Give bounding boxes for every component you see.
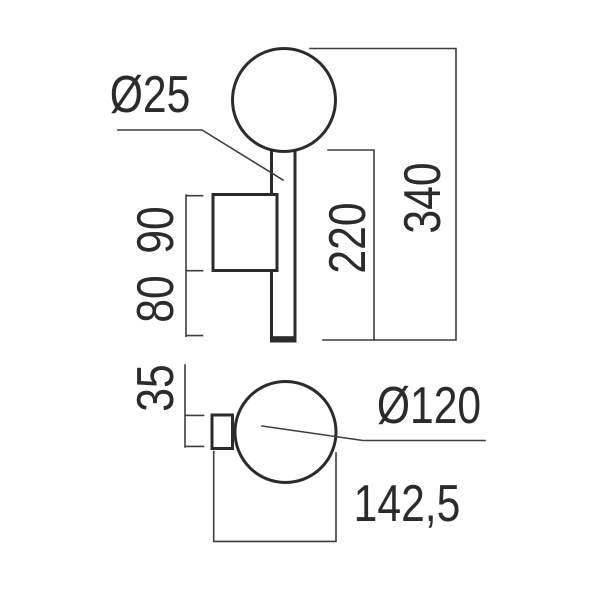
dim-label-bracket-height: 90 (130, 201, 182, 259)
sphere-front-outline (233, 49, 336, 152)
mount-outline (212, 415, 233, 449)
front-left-dim-line-90-80 (186, 195, 203, 336)
front-view (213, 49, 336, 342)
dim-label-total-projection: 142,5 (342, 478, 472, 530)
dim-label-stem-length: 220 (322, 195, 374, 282)
dim-label-mount-depth: 35 (130, 359, 182, 417)
plan-view (212, 382, 336, 483)
dim-text-mount-depth: 35 (130, 364, 182, 411)
dim-label-lower-drop: 80 (130, 270, 182, 328)
technical-drawing-canvas: Ø25 90 80 220 340 35 Ø120 142,5 (0, 0, 600, 600)
dim-label-total-height: 340 (397, 155, 449, 242)
dim-text-stem-length: 220 (322, 202, 374, 273)
dim-text-rod-diameter: Ø25 (110, 69, 191, 121)
bracket-outline (213, 195, 277, 271)
dim-text-total-height: 340 (397, 162, 449, 233)
dim-line-35 (185, 365, 204, 447)
dim-text-bracket-height: 90 (130, 206, 182, 253)
dim-label-rod-diameter: Ø25 (101, 69, 199, 121)
dim-label-sphere-diameter: Ø120 (365, 380, 492, 432)
dim-text-sphere-diameter: Ø120 (377, 380, 481, 432)
dim-text-total-projection: 142,5 (354, 478, 461, 530)
dim-text-lower-drop: 80 (130, 275, 182, 322)
stem-end-cap (271, 336, 297, 341)
drawing-linework (0, 0, 600, 600)
sphere-plan-outline (235, 382, 336, 483)
